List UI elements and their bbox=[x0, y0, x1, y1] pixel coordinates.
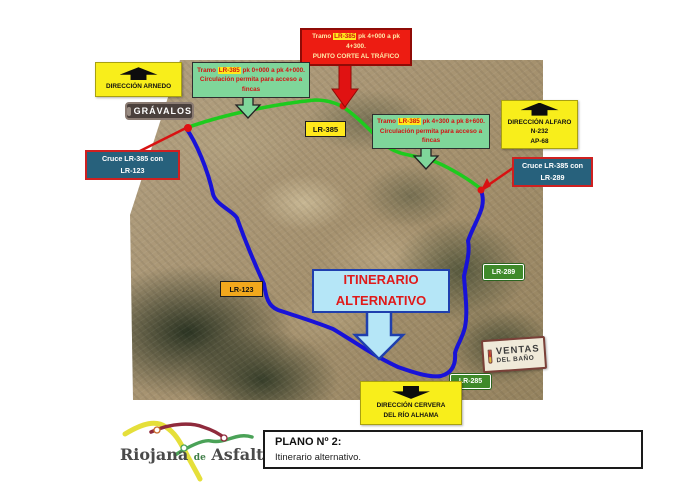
direction-cervera-sign: DIRECCIÓN CERVERA DEL RÍO ALHAMA bbox=[360, 381, 462, 425]
traffic-cut-notice-line2: PUNTO CORTE AL TRÁFICO bbox=[305, 52, 407, 62]
cruce-lr123-line1: Cruce LR-385 con bbox=[87, 153, 178, 165]
lr289-road-label: LR-289 bbox=[483, 264, 524, 280]
cruce-lr289-line1: Cruce LR-385 con bbox=[514, 160, 591, 172]
cruce-lr289-line2: LR-289 bbox=[514, 172, 591, 184]
route-ref-highlight: LR-385 bbox=[333, 33, 356, 40]
tramo2-info-box: Tramo LR-385 pk 4+300 a pk 8+600. Circul… bbox=[372, 114, 490, 149]
lr385-text: LR-385 bbox=[313, 125, 338, 134]
gravalos-town-sign: GRÁVALOS bbox=[125, 102, 194, 120]
direction-alfaro-line2: N-232 bbox=[508, 127, 572, 137]
ventas-text: VENTAS DEL BAÑO bbox=[496, 344, 541, 365]
direction-arnedo-label: DIRECCIÓN ARNEDO bbox=[106, 82, 171, 92]
itinerary-line2: ALTERNATIVO bbox=[314, 291, 448, 312]
direction-arnedo-sign: DIRECCIÓN ARNEDO bbox=[95, 62, 182, 97]
direction-alfaro-line3: AP-68 bbox=[508, 137, 572, 147]
route-ref-highlight: LR-385 bbox=[218, 67, 241, 74]
cruce-lr123-line2: LR-123 bbox=[87, 165, 178, 177]
tramo2-text: Tramo LR-385 pk 4+300 a pk 8+600. Circul… bbox=[377, 117, 485, 145]
lr289-text: LR-289 bbox=[492, 269, 515, 276]
lr385-road-label: LR-385 bbox=[305, 121, 346, 137]
direction-alfaro-label: DIRECCIÓN ALFARO N-232 AP-68 bbox=[508, 118, 572, 147]
logo-word1: Riojana bbox=[120, 445, 188, 464]
lr123-road-label: LR-123 bbox=[220, 281, 263, 297]
detour-plan-page: Tramo LR-385 pk 4+000 a pk 4+300. PUNTO … bbox=[0, 0, 690, 488]
direction-alfaro-line1: DIRECCIÓN ALFARO bbox=[508, 118, 572, 128]
direction-alfaro-sign: DIRECCIÓN ALFARO N-232 AP-68 bbox=[501, 100, 578, 149]
direction-cervera-line1: DIRECCIÓN CERVERA bbox=[377, 401, 446, 411]
gravalos-label: GRÁVALOS bbox=[134, 106, 192, 116]
cruce-lr123-box: Cruce LR-385 con LR-123 bbox=[85, 150, 180, 180]
ventas-line2: DEL BAÑO bbox=[496, 354, 540, 364]
cruce-lr289-box: Cruce LR-385 con LR-289 bbox=[512, 157, 593, 187]
traffic-cut-notice-box: Tramo LR-385 pk 4+000 a pk 4+300. PUNTO … bbox=[300, 28, 412, 66]
plan-subtitle: Itinerario alternativo. bbox=[275, 452, 631, 463]
logo-word2: de bbox=[194, 453, 206, 463]
tramo1-text: Tramo LR-385 pk 0+000 a pk 4+000. Circul… bbox=[197, 66, 305, 94]
lr123-text: LR-123 bbox=[230, 285, 254, 294]
lr285-text: LR-285 bbox=[459, 378, 482, 385]
shield-icon bbox=[488, 349, 493, 363]
traffic-cut-notice-text: Tramo LR-385 pk 4+000 a pk 4+300. bbox=[305, 32, 407, 52]
plan-title: PLANO Nº 2: bbox=[275, 436, 631, 448]
route-ref-highlight: LR-385 bbox=[398, 118, 421, 125]
town-emblem-icon bbox=[127, 107, 131, 116]
ventas-town-sign: VENTAS DEL BAÑO bbox=[481, 336, 547, 373]
down-arrow-icon bbox=[392, 386, 430, 399]
up-arrow-icon bbox=[120, 67, 158, 80]
direction-cervera-label: DIRECCIÓN CERVERA DEL RÍO ALHAMA bbox=[377, 401, 446, 420]
tramo1-info-box: Tramo LR-385 pk 0+000 a pk 4+000. Circul… bbox=[192, 62, 310, 98]
itinerary-line1: ITINERARIO bbox=[314, 270, 448, 291]
direction-cervera-line2: DEL RÍO ALHAMA bbox=[377, 411, 446, 421]
plan-title-block: PLANO Nº 2: Itinerario alternativo. bbox=[263, 430, 643, 469]
itinerary-title-box: ITINERARIO ALTERNATIVO bbox=[312, 269, 450, 313]
up-arrow-icon bbox=[521, 103, 559, 116]
